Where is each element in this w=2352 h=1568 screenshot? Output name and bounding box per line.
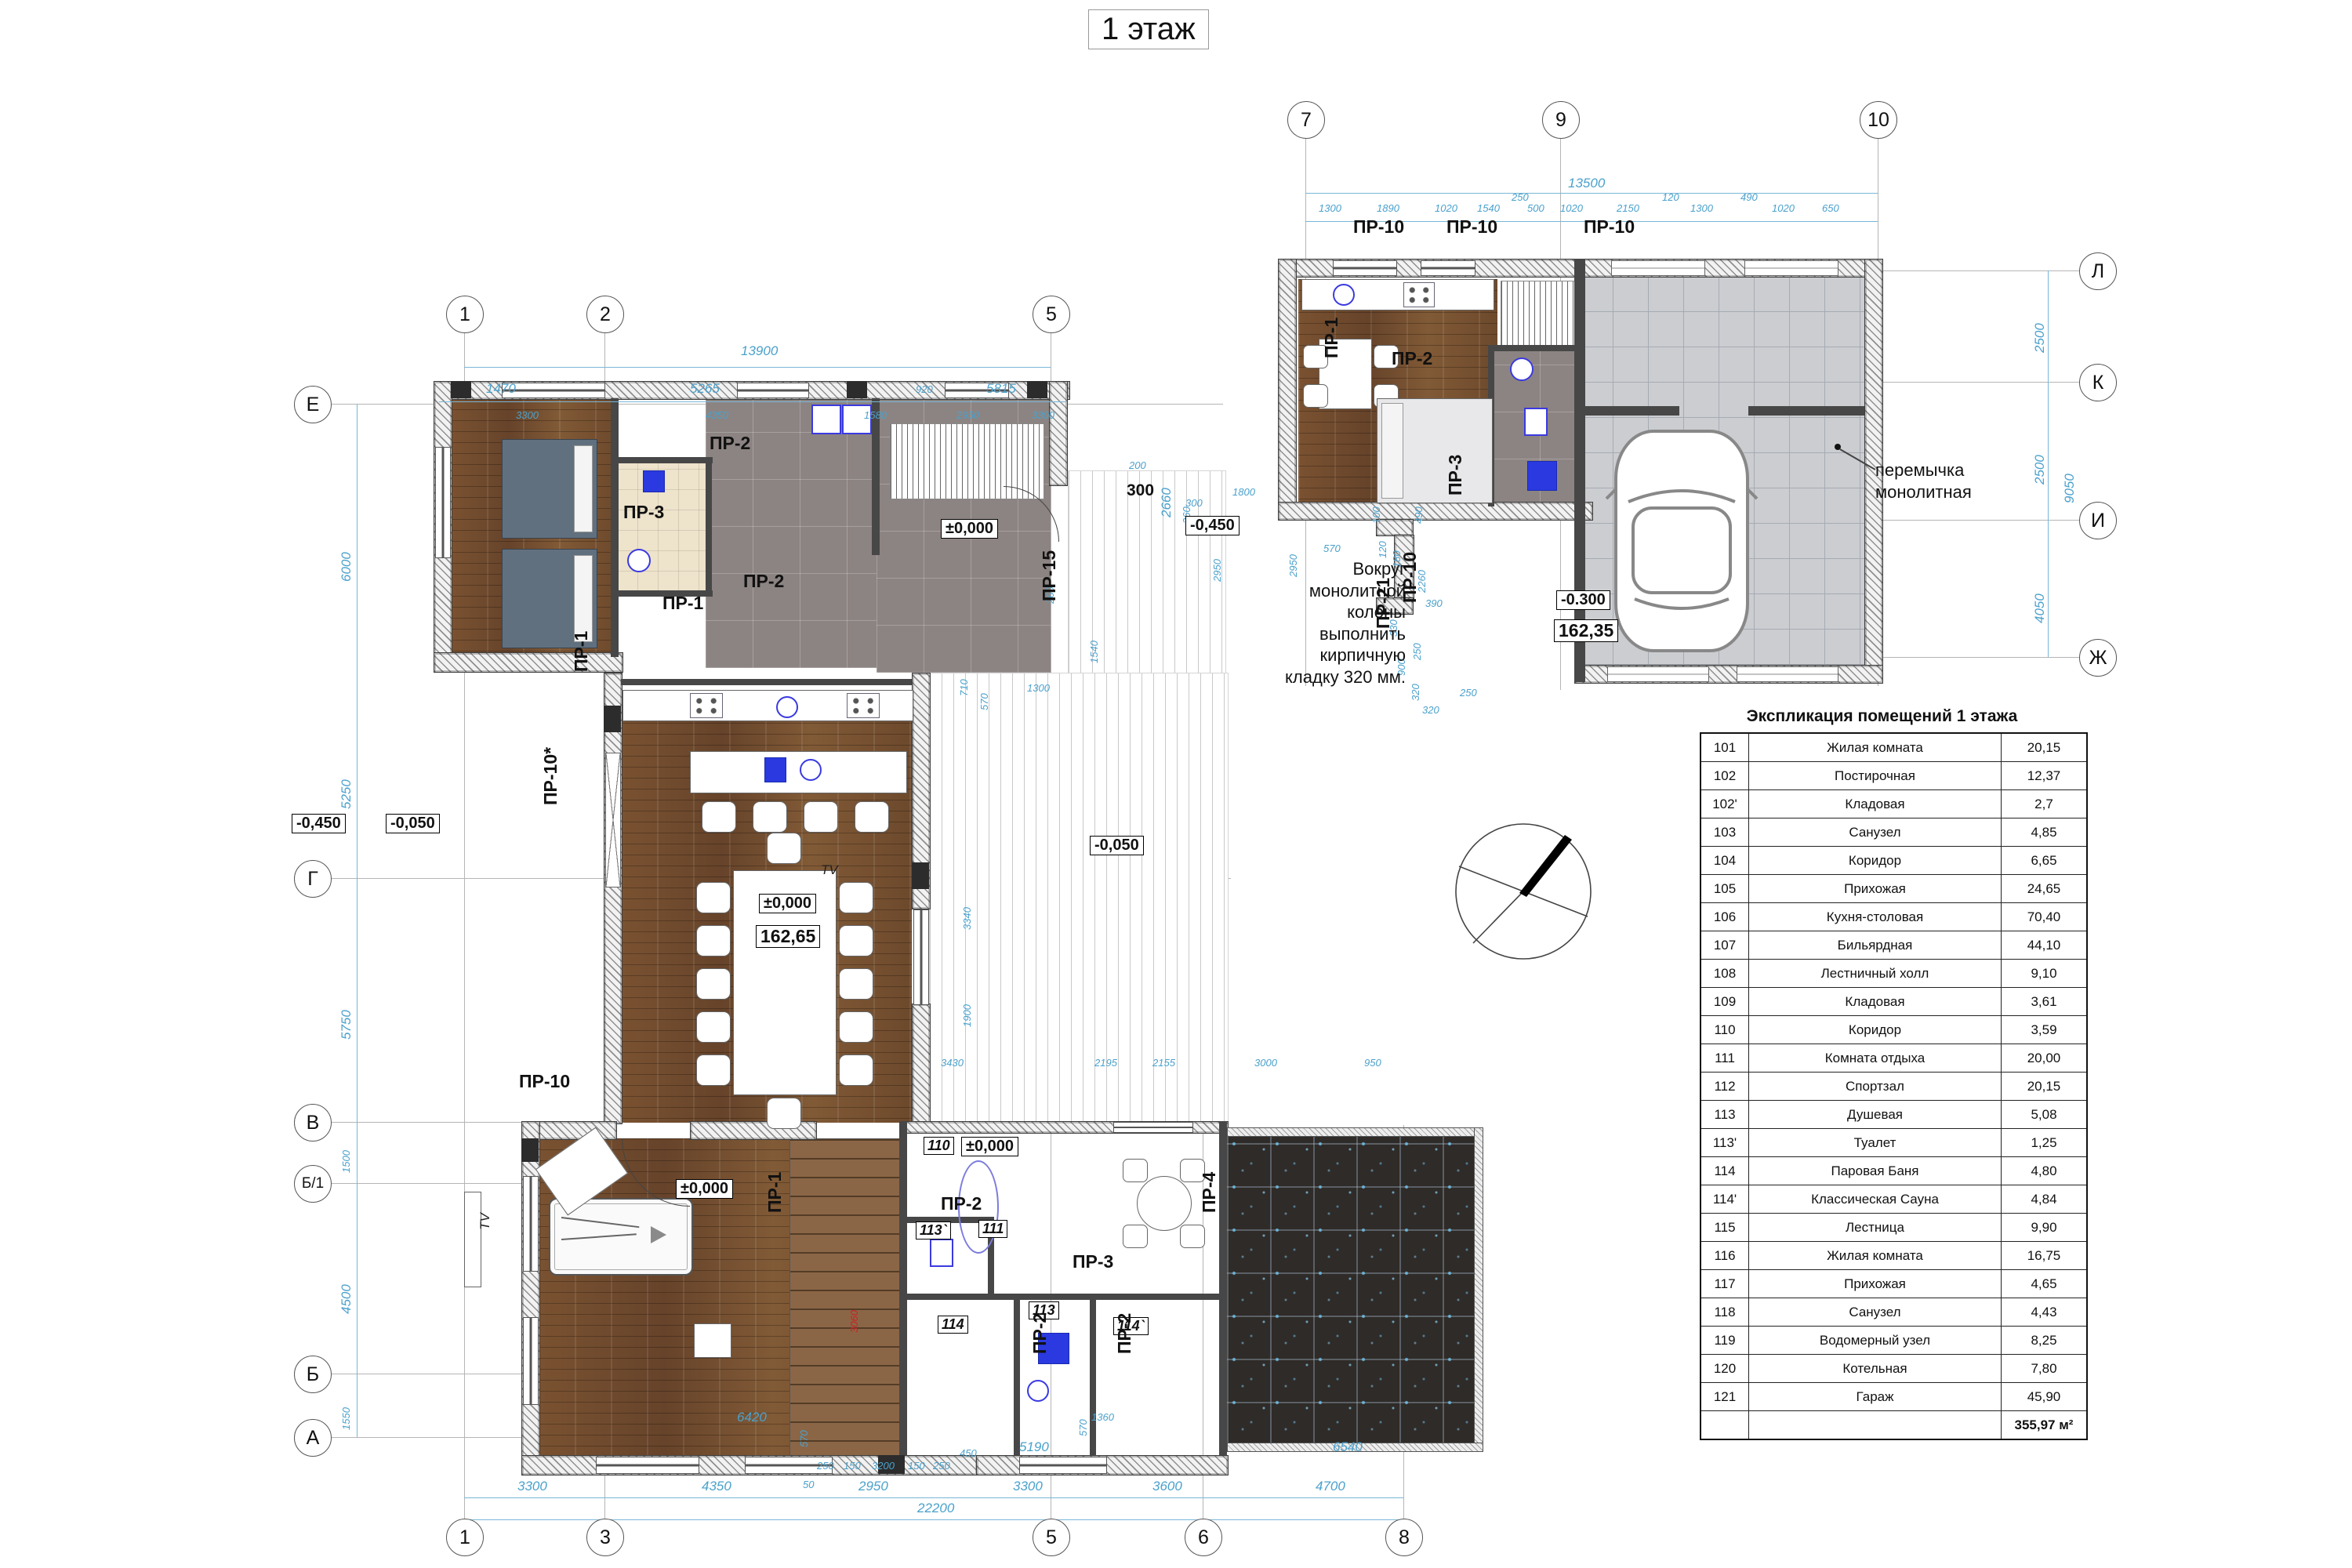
wall bbox=[604, 673, 622, 1124]
dim-label: 1300 bbox=[1319, 202, 1341, 214]
legend-table: 101Жилая комната20,15102Постирочная12,37… bbox=[1700, 732, 2088, 1440]
axis-circle: 7 bbox=[1287, 101, 1325, 139]
legend-cell: Кладовая bbox=[1749, 790, 2002, 818]
door-label: ПР-3 bbox=[1445, 455, 1466, 495]
lintel-jamb bbox=[1027, 381, 1047, 398]
dim-label: 1500 bbox=[340, 1150, 352, 1173]
legend-cell: Спортзал bbox=[1749, 1073, 2002, 1101]
axis-label: В bbox=[307, 1112, 320, 1134]
dim-label: 570 bbox=[798, 1430, 810, 1447]
axis-label: И bbox=[2091, 510, 2105, 532]
compass-icon bbox=[1453, 821, 1594, 962]
washer-icon bbox=[1527, 461, 1557, 491]
dimension-line bbox=[464, 1497, 1403, 1498]
dim-label: 100 bbox=[1370, 506, 1382, 524]
dim-label: 13500 bbox=[1568, 176, 1605, 191]
legend-title: Экспликация помещений 1 этажа bbox=[1700, 707, 2064, 726]
legend-cell: 110 bbox=[1700, 1016, 1749, 1044]
axis-label: 5 bbox=[1046, 303, 1057, 326]
legend-cell: 24,65 bbox=[2002, 875, 2088, 903]
axis-circle: 9 bbox=[1542, 101, 1580, 139]
dim-label: 250 bbox=[1512, 191, 1529, 203]
legend-cell: 107 bbox=[1700, 931, 1749, 960]
elevation-label: 300 bbox=[1127, 481, 1154, 500]
dim-label: 2500 bbox=[2032, 455, 2048, 485]
dim-label: 5250 bbox=[339, 779, 354, 809]
axis-circle: Б bbox=[294, 1356, 332, 1393]
legend-row: 104Коридор6,65 bbox=[1700, 847, 2087, 875]
legend-cell: 4,65 bbox=[2002, 1270, 2088, 1298]
dim-label: 3430 bbox=[941, 1057, 964, 1069]
dim-label: 22200 bbox=[917, 1501, 954, 1516]
wall bbox=[521, 1121, 540, 1475]
door-label: ПР-2 bbox=[1114, 1313, 1135, 1354]
window bbox=[435, 447, 451, 558]
axis-label: Ж bbox=[2089, 647, 2107, 670]
sink-icon bbox=[1333, 284, 1355, 306]
legend-cell: Коридор bbox=[1749, 847, 2002, 875]
dimension-line bbox=[357, 404, 358, 1437]
dim-label: 1540 bbox=[1477, 202, 1500, 214]
legend-row: 117Прихожая4,65 bbox=[1700, 1270, 2087, 1298]
chair bbox=[696, 1011, 731, 1043]
elevation-label: ±0,000 bbox=[676, 1179, 733, 1199]
dim-label: 1800 bbox=[1232, 486, 1255, 498]
axis-label: 1 bbox=[459, 303, 470, 326]
legend-cell: 12,37 bbox=[2002, 762, 2088, 790]
door-label: ПР-1 bbox=[764, 1172, 786, 1213]
dim-label: 4050 bbox=[2032, 593, 2048, 623]
dim-label: 320 bbox=[1410, 684, 1421, 701]
door-label: ПР-10 bbox=[1446, 216, 1497, 238]
legend-cell: 4,80 bbox=[2002, 1157, 2088, 1185]
elevation-label: -0,450 bbox=[292, 814, 346, 833]
armchair bbox=[694, 1323, 731, 1358]
window bbox=[523, 1317, 539, 1405]
elevation-label: ±0,000 bbox=[961, 1137, 1018, 1156]
axis-label: 9 bbox=[1555, 109, 1566, 132]
chair bbox=[1123, 1225, 1148, 1248]
toilet-icon bbox=[930, 1239, 953, 1267]
legend-row: 114Паровая Баня4,80 bbox=[1700, 1157, 2087, 1185]
door-label: ПР-10 bbox=[1353, 216, 1404, 238]
axis-circle: Б/1 bbox=[294, 1165, 332, 1203]
axis-label: 10 bbox=[1867, 109, 1889, 132]
door-label: ПР-2 bbox=[1392, 348, 1432, 369]
door-label: ПР-2 bbox=[743, 571, 784, 592]
axis-label: Г bbox=[307, 868, 318, 891]
lintel-jamb bbox=[451, 381, 471, 398]
axis-label: Л bbox=[2092, 260, 2104, 283]
wall bbox=[1049, 381, 1068, 486]
legend-cell: 4,84 bbox=[2002, 1185, 2088, 1214]
elevation-label: -0,050 bbox=[1090, 836, 1144, 855]
kitchen-island bbox=[690, 751, 907, 793]
legend-cell: 1,25 bbox=[2002, 1129, 2088, 1157]
door-label: ПР-3 bbox=[1073, 1251, 1113, 1272]
wall bbox=[1278, 502, 1593, 521]
chair bbox=[1180, 1225, 1205, 1248]
axis-circle: 6 bbox=[1185, 1519, 1222, 1556]
axis-circle: В bbox=[294, 1104, 332, 1142]
dim-label: 570 bbox=[1077, 1419, 1089, 1436]
elevation-label: ±0,000 bbox=[941, 519, 998, 539]
dim-label: 4350 bbox=[702, 1479, 731, 1494]
dim-label: 9050 bbox=[2062, 474, 2078, 503]
dim-label: 710 bbox=[958, 679, 970, 696]
wall bbox=[1574, 259, 1585, 682]
lintel-jamb bbox=[604, 706, 621, 732]
wall bbox=[902, 1294, 1219, 1300]
lintel-note: перемычка монолитная bbox=[1875, 459, 1972, 503]
chair bbox=[839, 925, 873, 956]
window-shaft bbox=[605, 753, 621, 887]
dim-label: 3300 bbox=[1013, 1479, 1043, 1494]
legend-row: 120Котельная7,80 bbox=[1700, 1355, 2087, 1383]
axis-line bbox=[1882, 657, 2079, 658]
legend-cell: 114' bbox=[1700, 1185, 1749, 1214]
axis-circle: 8 bbox=[1385, 1519, 1423, 1556]
dim-label: 2155 bbox=[1152, 1057, 1175, 1069]
axis-circle: 2 bbox=[586, 296, 624, 333]
legend-cell: 70,40 bbox=[2002, 903, 2088, 931]
dim-label: 120 bbox=[1377, 541, 1388, 558]
chair bbox=[839, 882, 873, 913]
legend-cell: Прихожая bbox=[1749, 1270, 2002, 1298]
chair bbox=[702, 801, 736, 833]
dim-label: 3300 bbox=[516, 409, 539, 421]
dim-label: 3000 bbox=[1254, 1057, 1277, 1069]
dimension-line bbox=[439, 401, 1066, 402]
legend-row: 116Жилая комната16,75 bbox=[1700, 1242, 2087, 1270]
bed-pillow bbox=[1381, 403, 1403, 499]
axis-label: 2 bbox=[600, 303, 611, 326]
axis-circle: 1 bbox=[446, 296, 484, 333]
chair bbox=[753, 801, 787, 833]
dim-label: 120 bbox=[1662, 191, 1679, 203]
window bbox=[737, 383, 809, 398]
dim-label: 1540 bbox=[1088, 641, 1100, 663]
kitchen-counter bbox=[1301, 279, 1494, 310]
dim-label: 5190 bbox=[1019, 1439, 1049, 1455]
dim-label: 3600 bbox=[1152, 1479, 1182, 1494]
dim-label: 4500 bbox=[339, 1284, 354, 1314]
dim-label: 150 bbox=[844, 1460, 861, 1472]
island-sink-icon bbox=[764, 757, 786, 782]
legend-total-num bbox=[1700, 1411, 1749, 1440]
wall bbox=[621, 679, 912, 685]
chair bbox=[839, 968, 873, 1000]
dim-label: 200 bbox=[1129, 459, 1146, 471]
legend-cell: 9,90 bbox=[2002, 1214, 2088, 1242]
wall bbox=[1488, 345, 1576, 351]
legend-cell: 102' bbox=[1700, 790, 1749, 818]
legend-cell: 111 bbox=[1700, 1044, 1749, 1073]
axis-label: 5 bbox=[1046, 1526, 1057, 1549]
door-label: ПР-10 bbox=[519, 1071, 570, 1092]
page-title: 1 этаж bbox=[1088, 9, 1209, 49]
area-label: 162,65 bbox=[756, 925, 820, 948]
legend-cell: 16,75 bbox=[2002, 1242, 2088, 1270]
legend-row: 109Кладовая3,61 bbox=[1700, 988, 2087, 1016]
chair bbox=[767, 833, 801, 864]
dimension-line bbox=[464, 367, 1051, 368]
legend-cell: 2,7 bbox=[2002, 790, 2088, 818]
room-tag: 111 bbox=[978, 1220, 1007, 1238]
legend-total-area: 355,97 м² bbox=[2002, 1411, 2088, 1440]
lintel-jamb bbox=[912, 862, 929, 889]
hob-icon bbox=[847, 693, 880, 718]
axis-circle: 3 bbox=[586, 1519, 624, 1556]
dim-label: 450 bbox=[960, 1447, 977, 1459]
legend-row: 119Водомерный узел8,25 bbox=[1700, 1327, 2087, 1355]
wall bbox=[1090, 1300, 1096, 1455]
axis-circle: 1 bbox=[446, 1519, 484, 1556]
dim-label: 300 bbox=[1185, 497, 1203, 509]
door-label: ПР-3 bbox=[623, 502, 664, 523]
dim-label: 150 bbox=[908, 1460, 925, 1472]
legend-cell: 104 bbox=[1700, 847, 1749, 875]
window bbox=[913, 909, 929, 1005]
door-label: ПР-2 bbox=[1029, 1313, 1051, 1354]
window bbox=[1019, 1457, 1107, 1474]
room-tag: 110 bbox=[924, 1137, 954, 1155]
chair bbox=[839, 1054, 873, 1086]
legend-cell: Постирочная bbox=[1749, 762, 2002, 790]
door-label: ПР-1 bbox=[1321, 318, 1342, 358]
dim-label: 250 bbox=[1460, 687, 1477, 699]
chair bbox=[696, 882, 731, 913]
dim-label: 5750 bbox=[339, 1010, 354, 1040]
axis-circle: Л bbox=[2079, 252, 2117, 290]
dim-label: 1890 bbox=[1377, 202, 1399, 214]
axis-label: 7 bbox=[1301, 109, 1312, 132]
garage-gate bbox=[1611, 260, 1705, 276]
axis-circle: 10 bbox=[1860, 101, 1897, 139]
dim-label: 50 bbox=[803, 1479, 814, 1490]
bed-pillow bbox=[574, 445, 593, 532]
wall bbox=[706, 457, 712, 597]
sink-icon bbox=[627, 549, 651, 572]
dim-label: 5815 bbox=[986, 381, 1016, 397]
door-label: ПР-10* bbox=[540, 747, 561, 805]
dim-label: 2660 bbox=[1159, 488, 1174, 517]
legend-cell: Лестничный холл bbox=[1749, 960, 2002, 988]
washer-icon bbox=[811, 405, 841, 434]
dim-label: 2195 bbox=[1094, 1057, 1117, 1069]
dim-label: 490 bbox=[1740, 191, 1758, 203]
dim-label: 390 bbox=[1425, 597, 1443, 609]
legend-cell: Гараж bbox=[1749, 1383, 2002, 1411]
room-tag: 114 bbox=[938, 1316, 968, 1334]
legend-cell: 119 bbox=[1700, 1327, 1749, 1355]
chair bbox=[855, 801, 889, 833]
legend-cell: Классическая Сауна bbox=[1749, 1185, 2002, 1214]
dim-label: 650 bbox=[1822, 202, 1839, 214]
chair bbox=[804, 801, 838, 833]
legend-total-name bbox=[1749, 1411, 2002, 1440]
side-terrace-deck bbox=[929, 673, 1229, 1124]
dim-label: 4700 bbox=[1316, 1479, 1345, 1494]
legend-cell: Кухня-столовая bbox=[1749, 903, 2002, 931]
window bbox=[1421, 260, 1475, 276]
wall bbox=[1585, 406, 1679, 416]
axis-line bbox=[329, 1374, 541, 1374]
axis-line bbox=[329, 1183, 541, 1184]
elevation-label: -0.300 bbox=[1556, 590, 1610, 610]
legend-cell: Паровая Баня bbox=[1749, 1157, 2002, 1185]
door-label: ПР-1 bbox=[571, 631, 592, 672]
legend-cell: Прихожая bbox=[1749, 875, 2002, 903]
legend-cell: 4,85 bbox=[2002, 818, 2088, 847]
legend-cell: 108 bbox=[1700, 960, 1749, 988]
legend-cell: 121 bbox=[1700, 1383, 1749, 1411]
chair bbox=[1303, 384, 1328, 408]
legend-row: 102Постирочная12,37 bbox=[1700, 762, 2087, 790]
legend-cell: Лестница bbox=[1749, 1214, 2002, 1242]
lintel-jamb bbox=[521, 1138, 539, 1162]
sink-icon bbox=[776, 696, 798, 718]
sink-icon bbox=[1510, 358, 1534, 381]
axis-circle: И bbox=[2079, 502, 2117, 539]
dim-label: 320 bbox=[1422, 704, 1439, 716]
legend-cell: 3,61 bbox=[2002, 988, 2088, 1016]
axis-circle: А bbox=[294, 1419, 332, 1457]
dim-label: 1550 bbox=[340, 1407, 352, 1430]
legend-cell: Бильярдная bbox=[1749, 931, 2002, 960]
window bbox=[596, 1457, 699, 1474]
legend-cell: 106 bbox=[1700, 903, 1749, 931]
legend-cell: Жилая комната bbox=[1749, 733, 2002, 762]
legend-cell: Туалет bbox=[1749, 1129, 2002, 1157]
legend-cell: 3,59 bbox=[2002, 1016, 2088, 1044]
dim-label: 570 bbox=[1323, 543, 1341, 554]
axis-label: А bbox=[307, 1427, 320, 1450]
legend-row: 110Коридор3,59 bbox=[1700, 1016, 2087, 1044]
door-label: ПР-10 bbox=[1584, 216, 1635, 238]
door-label: ПР-2 bbox=[941, 1193, 982, 1214]
room-tag: 113` bbox=[916, 1221, 951, 1240]
wall bbox=[1748, 406, 1864, 416]
elevation-label: -0,050 bbox=[386, 814, 440, 833]
axis-circle: 5 bbox=[1033, 1519, 1070, 1556]
wall bbox=[899, 1121, 907, 1455]
legend-cell: Коридор bbox=[1749, 1016, 2002, 1044]
dim-label: 3300 bbox=[1032, 409, 1054, 421]
dim-label: 2150 bbox=[1617, 202, 1639, 214]
dim-label: 250 bbox=[817, 1460, 834, 1472]
wall bbox=[1219, 1121, 1227, 1455]
legend-row: 113'Туалет1,25 bbox=[1700, 1129, 2087, 1157]
legend-cell: 20,15 bbox=[2002, 1073, 2088, 1101]
axis-label: К bbox=[2092, 372, 2104, 394]
legend-cell: 20,00 bbox=[2002, 1044, 2088, 1073]
wall bbox=[912, 1004, 931, 1124]
door-label: ПР-2 bbox=[710, 433, 750, 454]
dimension-line bbox=[2048, 270, 2049, 657]
legend-cell: 103 bbox=[1700, 818, 1749, 847]
dim-label: 3340 bbox=[961, 907, 973, 930]
dim-label: 5265 bbox=[690, 381, 720, 397]
dim-label: 6540 bbox=[1333, 1439, 1363, 1455]
chair bbox=[696, 925, 731, 956]
dim-label: 920 bbox=[916, 383, 933, 395]
bed-pillow bbox=[574, 555, 593, 642]
legend-cell: 101 bbox=[1700, 733, 1749, 762]
axis-circle: Г bbox=[294, 860, 332, 898]
legend-row: 107Бильярдная44,10 bbox=[1700, 931, 2087, 960]
axis-label: 1 bbox=[459, 1526, 470, 1549]
column-note: Вокруг монолитной колоны выполнить кирпи… bbox=[1253, 558, 1406, 688]
door-label: ПР-15 bbox=[1039, 550, 1060, 601]
island-hob-icon bbox=[800, 759, 822, 781]
legend-cell: 118 bbox=[1700, 1298, 1749, 1327]
legend-cell: 44,10 bbox=[2002, 931, 2088, 960]
garage-gate bbox=[1737, 666, 1838, 682]
chair bbox=[767, 1098, 801, 1129]
legend-cell: 8,25 bbox=[2002, 1327, 2088, 1355]
dim-label: 1020 bbox=[1772, 202, 1795, 214]
legend-cell: 117 bbox=[1700, 1270, 1749, 1298]
legend-cell: 7,80 bbox=[2002, 1355, 2088, 1383]
window bbox=[502, 383, 605, 398]
sideboard bbox=[464, 1192, 481, 1287]
legend-cell: 112 bbox=[1700, 1073, 1749, 1101]
legend-cell: 9,10 bbox=[2002, 960, 2088, 988]
dim-label: 3200 bbox=[872, 1460, 895, 1472]
legend-row: 105Прихожая24,65 bbox=[1700, 875, 2087, 903]
legend-cell: 102 bbox=[1700, 762, 1749, 790]
garage-closet bbox=[1501, 281, 1576, 347]
dim-label: 6420 bbox=[737, 1410, 767, 1425]
axis-label: Е bbox=[307, 394, 320, 416]
dim-label: 4350 bbox=[706, 409, 728, 421]
axis-circle: Ж bbox=[2079, 639, 2117, 677]
dim-label: 950 bbox=[1364, 1057, 1381, 1069]
wardrobe bbox=[890, 423, 1044, 499]
legend-cell: Санузел bbox=[1749, 818, 2002, 847]
legend-row: 118Санузел4,43 bbox=[1700, 1298, 2087, 1327]
dim-label: 2950 bbox=[1211, 559, 1223, 582]
legend-cell: 105 bbox=[1700, 875, 1749, 903]
legend-cell: 115 bbox=[1700, 1214, 1749, 1242]
billiard-balls bbox=[651, 1226, 666, 1243]
legend-cell: 113 bbox=[1700, 1101, 1749, 1129]
dim-label: 500 bbox=[1527, 202, 1544, 214]
axis-label: 3 bbox=[600, 1526, 611, 1549]
dim-label: 1300 bbox=[1027, 682, 1050, 694]
legend-body: 101Жилая комната20,15102Постирочная12,37… bbox=[1700, 733, 2087, 1411]
tv-label: TV bbox=[821, 862, 838, 878]
round-table bbox=[1137, 1176, 1192, 1231]
wall bbox=[434, 652, 623, 673]
legend-cell: Комната отдыха bbox=[1749, 1044, 2002, 1073]
terrace-wall bbox=[1227, 1127, 1483, 1137]
dim-label: 2950 bbox=[956, 409, 979, 421]
legend-row: 113Душевая5,08 bbox=[1700, 1101, 2087, 1129]
hob-icon bbox=[1403, 282, 1435, 307]
axis-circle: Е bbox=[294, 386, 332, 423]
chair bbox=[696, 1054, 731, 1086]
legend-row: 114'Классическая Сауна4,84 bbox=[1700, 1185, 2087, 1214]
legend-row: 101Жилая комната20,15 bbox=[1700, 733, 2087, 762]
legend-cell: 4,43 bbox=[2002, 1298, 2088, 1327]
legend-cell: Душевая bbox=[1749, 1101, 2002, 1129]
axis-circle: К bbox=[2079, 364, 2117, 401]
floor-plan-canvas: { "title": "1 этаж", "axes": { "top": ["… bbox=[0, 0, 2352, 1568]
window bbox=[1113, 1122, 1193, 1133]
garage-gate bbox=[1744, 260, 1838, 276]
